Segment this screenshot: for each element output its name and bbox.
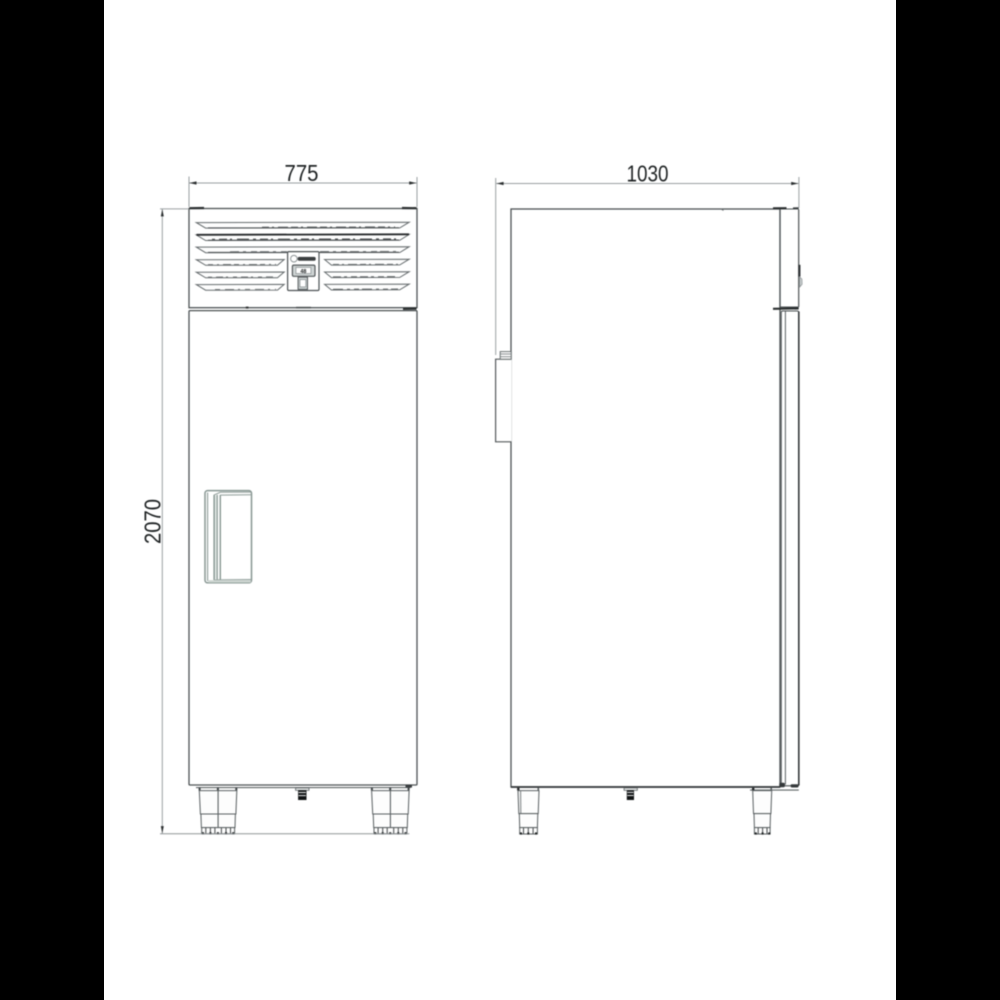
svg-text:1030: 1030 bbox=[627, 160, 669, 186]
svg-text:2070: 2070 bbox=[140, 499, 166, 544]
svg-text:775: 775 bbox=[285, 160, 319, 186]
svg-text:48: 48 bbox=[300, 269, 306, 275]
